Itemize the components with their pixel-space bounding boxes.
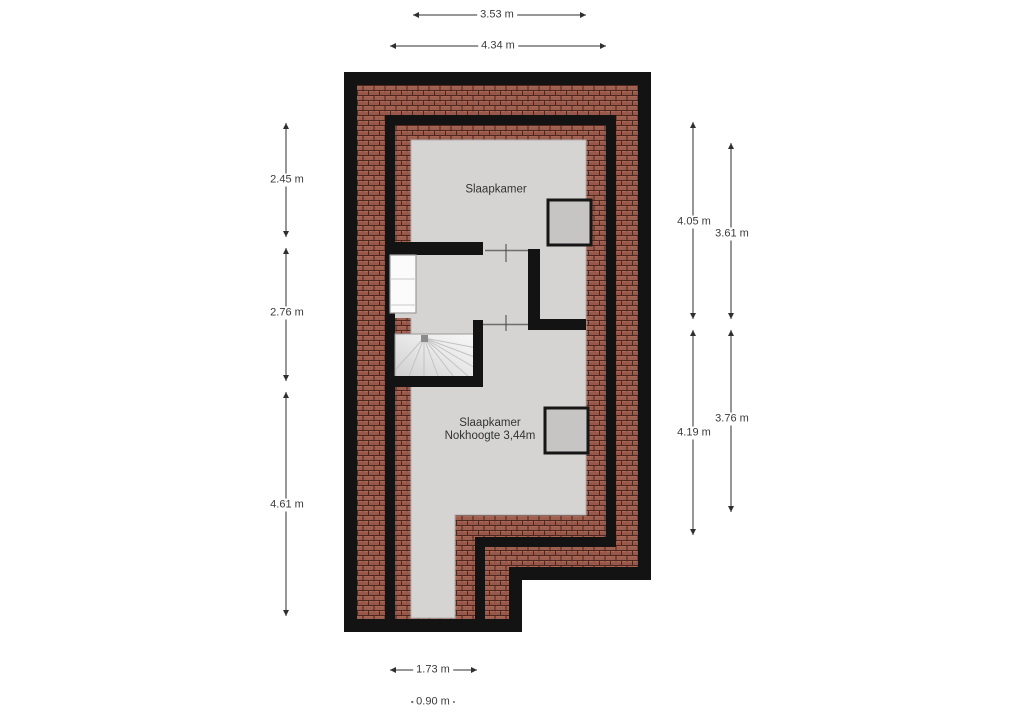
staircase: [395, 334, 477, 377]
dim-label-bottom-stair: 1.73 m: [413, 664, 453, 677]
dim-label-bottom-strip: 0.90 m: [413, 696, 453, 709]
floorplan-canvas: 3.53 m 4.34 m 2.45 m 2.76 m 4.61 m 4.05 …: [0, 0, 1018, 720]
room-label-bottom-bedroom: Slaapkamer Nokhoogte 3,44m: [445, 417, 536, 443]
staircase-newel-post: [421, 335, 428, 342]
bed: [390, 255, 416, 313]
wall-stair-south: [385, 376, 483, 387]
room-label-bottom-bedroom-note: Nokhoogte 3,44m: [445, 430, 536, 443]
dim-label-top-inner: 3.53 m: [477, 9, 517, 22]
dormer-window-top: [548, 200, 591, 245]
dim-label-left-upper: 2.45 m: [267, 174, 307, 187]
dim-label-right-lower-outer: 4.19 m: [674, 427, 714, 440]
bed-body: [390, 255, 416, 313]
wall-landing-east: [528, 249, 540, 330]
dim-label-left-middle: 2.76 m: [267, 307, 307, 320]
dim-label-left-lower: 4.61 m: [267, 499, 307, 512]
room-label-top-bedroom: Slaapkamer: [465, 184, 526, 197]
dormer-window-bottom: [545, 408, 588, 453]
room-label-bottom-bedroom-name: Slaapkamer: [445, 417, 536, 430]
dim-label-right-lower-inner: 3.76 m: [712, 413, 752, 426]
wall-bedrooms-divider: [528, 319, 586, 330]
dim-label-top-outer: 4.34 m: [478, 40, 518, 53]
dim-label-right-upper-outer: 4.05 m: [674, 216, 714, 229]
floorplan-drawing: [0, 0, 1018, 720]
dim-label-right-upper-inner: 3.61 m: [712, 228, 752, 241]
wall-top-bedroom-south: [385, 242, 483, 255]
